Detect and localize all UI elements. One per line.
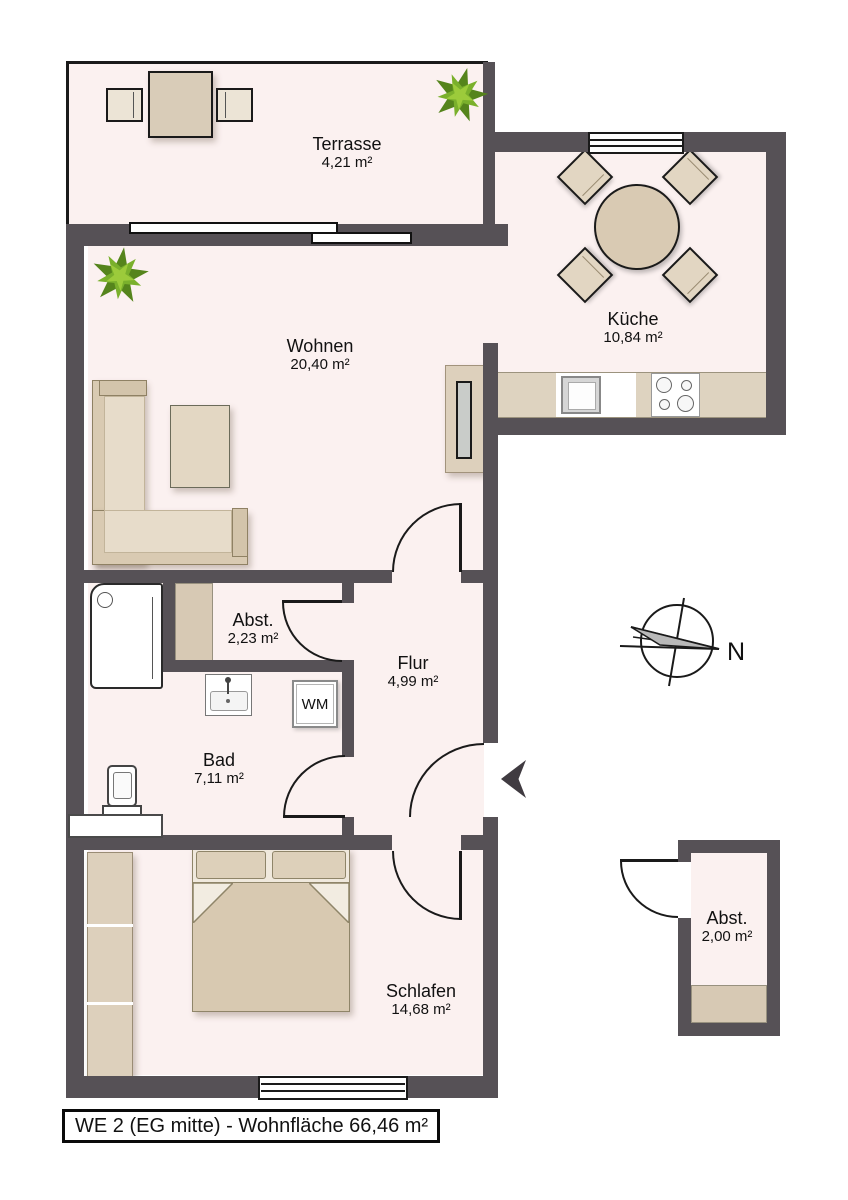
wardrobe	[87, 852, 133, 1083]
room-area: 4,99 m²	[388, 673, 439, 691]
outdoor-storage-door-opening	[678, 862, 691, 918]
room-label-bad: Bad 7,11 m²	[194, 750, 244, 788]
bedroom-door-leaf	[459, 851, 462, 920]
room-name: Bad	[194, 750, 244, 770]
dining-table	[594, 184, 680, 270]
floor-plan: WM N Terrasse 4,21 m² Küche 10,84 m²	[0, 0, 848, 1200]
wall-living-hall-right	[461, 570, 485, 583]
bedroom-window	[258, 1076, 408, 1100]
shower-head	[97, 592, 113, 608]
bed-pillow-left	[196, 851, 266, 879]
wall-living-hall	[84, 570, 392, 583]
wall-kitchen-right	[766, 132, 786, 434]
sofa-armrest-top	[99, 380, 147, 396]
blanket-fold-right	[309, 883, 349, 923]
room-name: Wohnen	[287, 336, 354, 356]
plant-icon	[432, 67, 488, 123]
entrance-direction-arrow-icon	[501, 760, 526, 798]
drain	[226, 699, 230, 703]
washbasin	[205, 674, 252, 716]
room-name: Terrasse	[312, 134, 381, 154]
outdoor-storage-door-arc	[620, 861, 678, 918]
outdoor-storage-shelf	[691, 985, 767, 1023]
kitchen-window-line	[590, 139, 682, 141]
room-label-abstellraum: Abst. 2,23 m²	[228, 610, 279, 648]
wall-bath-hall	[342, 660, 354, 757]
stove	[651, 373, 700, 417]
room-name: Abst.	[228, 610, 279, 630]
room-area: 2,23 m²	[228, 630, 279, 648]
wardrobe-divider	[87, 924, 133, 927]
room-label-flur: Flur 4,99 m²	[388, 653, 439, 691]
washing-machine-label: WM	[296, 684, 334, 724]
bed-pillow-right	[272, 851, 346, 879]
wall-kitchen-bottom	[483, 418, 786, 435]
coffee-table	[170, 405, 230, 488]
wall-storage-right-upper	[342, 583, 354, 603]
storage-door-leaf	[282, 600, 342, 603]
terrace-border-left	[66, 61, 69, 228]
room-name: Schlafen	[386, 981, 456, 1001]
terrace-chair-left	[106, 88, 143, 122]
room-area: 7,11 m²	[194, 770, 244, 788]
tv-screen	[456, 381, 472, 459]
plant-icon	[91, 247, 149, 305]
shower-glass-line	[152, 597, 153, 679]
room-area: 4,21 m²	[312, 154, 381, 172]
bedroom-window-line	[261, 1090, 405, 1092]
sliding-door-panel-right	[311, 232, 412, 244]
living-room-door-leaf	[459, 503, 462, 572]
chair-backrest-line	[225, 92, 226, 118]
wall-exterior-right-lower	[483, 817, 498, 1098]
wardrobe-divider	[87, 1002, 133, 1005]
compass-north-label: N	[727, 638, 745, 667]
bath-niche-window	[68, 814, 163, 838]
terrace-table	[148, 71, 213, 138]
room-label-schlafen: Schlafen 14,68 m²	[386, 981, 456, 1019]
room-label-abstellraum-aussen: Abst. 2,00 m²	[702, 908, 753, 946]
sofa-seat-vertical	[104, 396, 145, 512]
storage-shelf	[175, 583, 213, 668]
plan-title: WE 2 (EG mitte) - Wohnfläche 66,46 m²	[75, 1115, 428, 1138]
room-area: 2,00 m²	[702, 928, 753, 946]
room-area: 10,84 m²	[603, 329, 662, 347]
toilet-seat	[113, 772, 132, 799]
terrace-floor	[66, 62, 488, 228]
sliding-door-panel-left	[129, 222, 338, 234]
wall-hall-bedroom-right	[461, 835, 498, 850]
shower	[90, 583, 163, 689]
kitchen-window-line	[590, 145, 682, 147]
room-label-terrasse: Terrasse 4,21 m²	[312, 134, 381, 172]
title-box: WE 2 (EG mitte) - Wohnfläche 66,46 m²	[62, 1109, 440, 1143]
wall-exterior-right-upper	[483, 343, 498, 743]
blanket-fold-left	[193, 883, 233, 923]
wall-storage-bottom	[163, 660, 354, 672]
sink	[561, 376, 601, 414]
washing-machine: WM	[292, 680, 338, 728]
stove-burner	[659, 399, 670, 410]
room-label-wohnen: Wohnen 20,40 m²	[287, 336, 354, 374]
room-area: 20,40 m²	[287, 356, 354, 374]
chair-backrest-line	[133, 92, 134, 118]
room-name: Abst.	[702, 908, 753, 928]
sofa-armrest-right	[232, 508, 248, 557]
toilet-bowl	[107, 765, 137, 807]
stove-burner	[681, 380, 692, 391]
sofa-seat-horizontal	[104, 510, 232, 553]
wall-storage-left	[163, 583, 175, 672]
room-name: Flur	[388, 653, 439, 673]
terrace-border-top	[66, 61, 488, 64]
room-name: Küche	[603, 309, 662, 329]
sink-basin	[568, 382, 596, 410]
outdoor-storage-door-leaf	[620, 859, 678, 862]
stove-burner	[677, 395, 694, 412]
room-area: 14,68 m²	[386, 1001, 456, 1019]
kitchen-passage-floor	[483, 246, 508, 346]
stove-burner	[656, 377, 672, 393]
terrace-chair-right	[216, 88, 253, 122]
bedroom-window-line	[261, 1083, 405, 1085]
kitchen-window	[588, 132, 684, 154]
wall-exterior-left	[66, 224, 84, 1098]
bath-door-leaf	[283, 815, 345, 818]
faucet-knob	[225, 677, 231, 683]
room-label-kueche: Küche 10,84 m²	[603, 309, 662, 347]
